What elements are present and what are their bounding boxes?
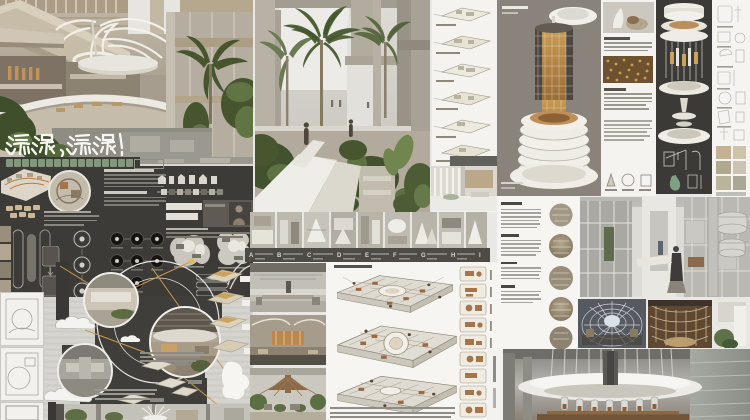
svg-text:C: C [307, 253, 312, 259]
svg-text:F: F [393, 253, 397, 259]
svg-text:A: A [249, 253, 254, 259]
svg-text:D: D [337, 253, 342, 259]
svg-text:B: B [277, 253, 282, 259]
svg-text:H: H [451, 253, 455, 259]
svg-text:E: E [365, 253, 369, 259]
svg-text:G: G [421, 253, 426, 259]
svg-text:I: I [479, 253, 481, 259]
